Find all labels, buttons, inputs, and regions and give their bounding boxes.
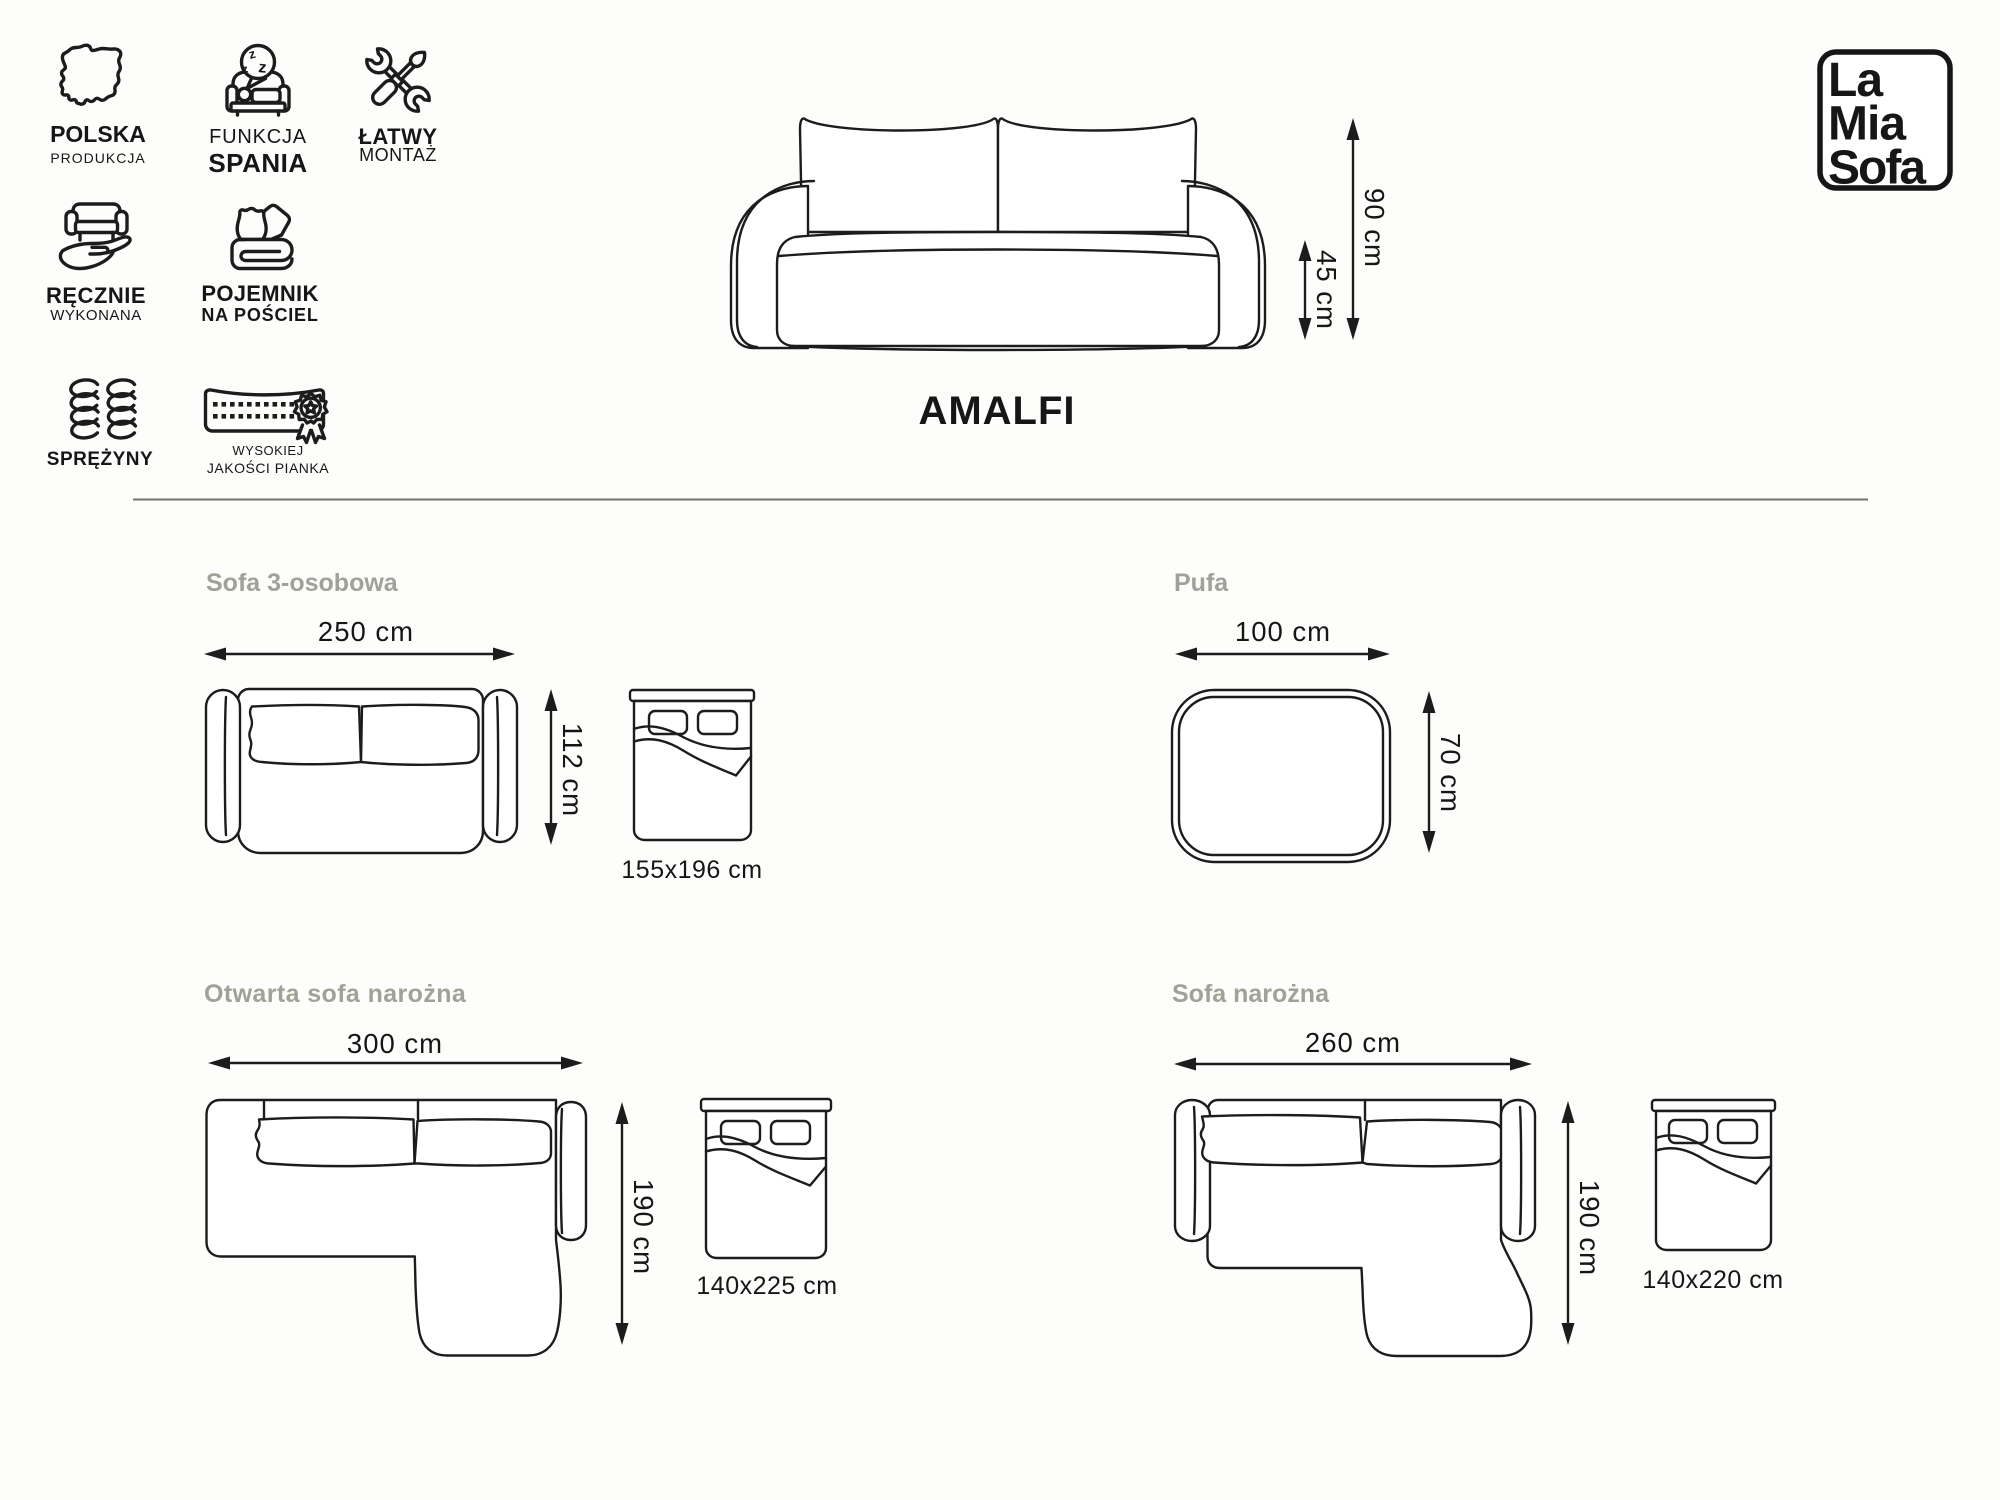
svg-text:WYSOKIEJ: WYSOKIEJ <box>232 443 303 458</box>
svg-text:190 cm: 190 cm <box>1574 1180 1605 1276</box>
svg-text:190 cm: 190 cm <box>628 1179 659 1275</box>
svg-text:Sofa: Sofa <box>1828 142 1926 195</box>
svg-text:Sofa 3-osobowa: Sofa 3-osobowa <box>206 569 399 597</box>
svg-text:140x225 cm: 140x225 cm <box>696 1272 837 1300</box>
svg-text:SPANIA: SPANIA <box>208 148 307 178</box>
svg-text:RĘCZNIE: RĘCZNIE <box>46 283 146 308</box>
svg-text:70 cm: 70 cm <box>1435 733 1466 813</box>
svg-text:90 cm: 90 cm <box>1359 188 1390 268</box>
svg-text:POLSKA: POLSKA <box>50 121 146 147</box>
svg-text:NA POŚCIEL: NA POŚCIEL <box>201 304 318 325</box>
svg-text:WYKONANA: WYKONANA <box>50 307 142 324</box>
svg-text:JAKOŚCI PIANKA: JAKOŚCI PIANKA <box>207 459 329 476</box>
svg-text:FUNKCJA: FUNKCJA <box>209 126 307 148</box>
svg-text:140x220 cm: 140x220 cm <box>1642 1266 1783 1294</box>
svg-text:POJEMNIK: POJEMNIK <box>201 281 318 306</box>
svg-text:AMALFI: AMALFI <box>918 389 1075 433</box>
svg-text:MONTAŻ: MONTAŻ <box>359 145 437 165</box>
svg-text:260 cm: 260 cm <box>1305 1027 1401 1058</box>
svg-text:100 cm: 100 cm <box>1235 616 1331 647</box>
svg-text:300 cm: 300 cm <box>347 1028 443 1059</box>
svg-text:Sofa narożna: Sofa narożna <box>1172 980 1330 1008</box>
svg-text:45 cm: 45 cm <box>1311 250 1342 330</box>
svg-text:Pufa: Pufa <box>1174 569 1229 597</box>
svg-text:250 cm: 250 cm <box>318 616 414 647</box>
svg-text:155x196 cm: 155x196 cm <box>621 856 762 884</box>
svg-text:Otwarta sofa narożna: Otwarta sofa narożna <box>204 980 467 1008</box>
svg-text:112 cm: 112 cm <box>557 723 588 817</box>
svg-text:PRODUKCJA: PRODUKCJA <box>50 150 145 166</box>
svg-text:SPRĘŻYNY: SPRĘŻYNY <box>47 449 153 470</box>
